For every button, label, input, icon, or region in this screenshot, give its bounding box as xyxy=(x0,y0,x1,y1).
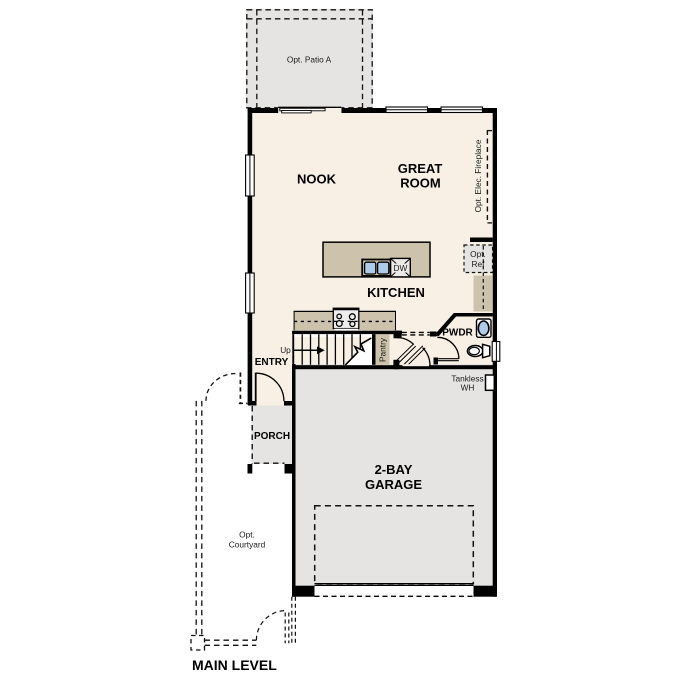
svg-text:GARAGE: GARAGE xyxy=(365,477,422,492)
svg-text:ROOM: ROOM xyxy=(400,176,440,191)
svg-text:Opt. Elec. Fireplace: Opt. Elec. Fireplace xyxy=(473,139,483,212)
svg-text:WH: WH xyxy=(461,383,475,393)
svg-text:Opt.: Opt. xyxy=(239,530,255,540)
svg-text:DW: DW xyxy=(393,263,407,273)
svg-text:NOOK: NOOK xyxy=(297,171,337,186)
svg-text:Courtyard: Courtyard xyxy=(229,540,266,550)
svg-text:Up: Up xyxy=(280,345,291,355)
svg-text:2-BAY: 2-BAY xyxy=(375,462,413,477)
svg-text:ENTRY: ENTRY xyxy=(255,357,289,368)
svg-text:PWDR: PWDR xyxy=(442,327,473,338)
svg-text:KITCHEN: KITCHEN xyxy=(367,285,425,300)
svg-text:GREAT: GREAT xyxy=(398,161,443,176)
svg-text:Opt. Patio A: Opt. Patio A xyxy=(287,55,332,65)
svg-text:MAIN LEVEL: MAIN LEVEL xyxy=(192,657,277,673)
svg-text:Pantry: Pantry xyxy=(378,337,388,362)
svg-text:PORCH: PORCH xyxy=(254,431,290,442)
